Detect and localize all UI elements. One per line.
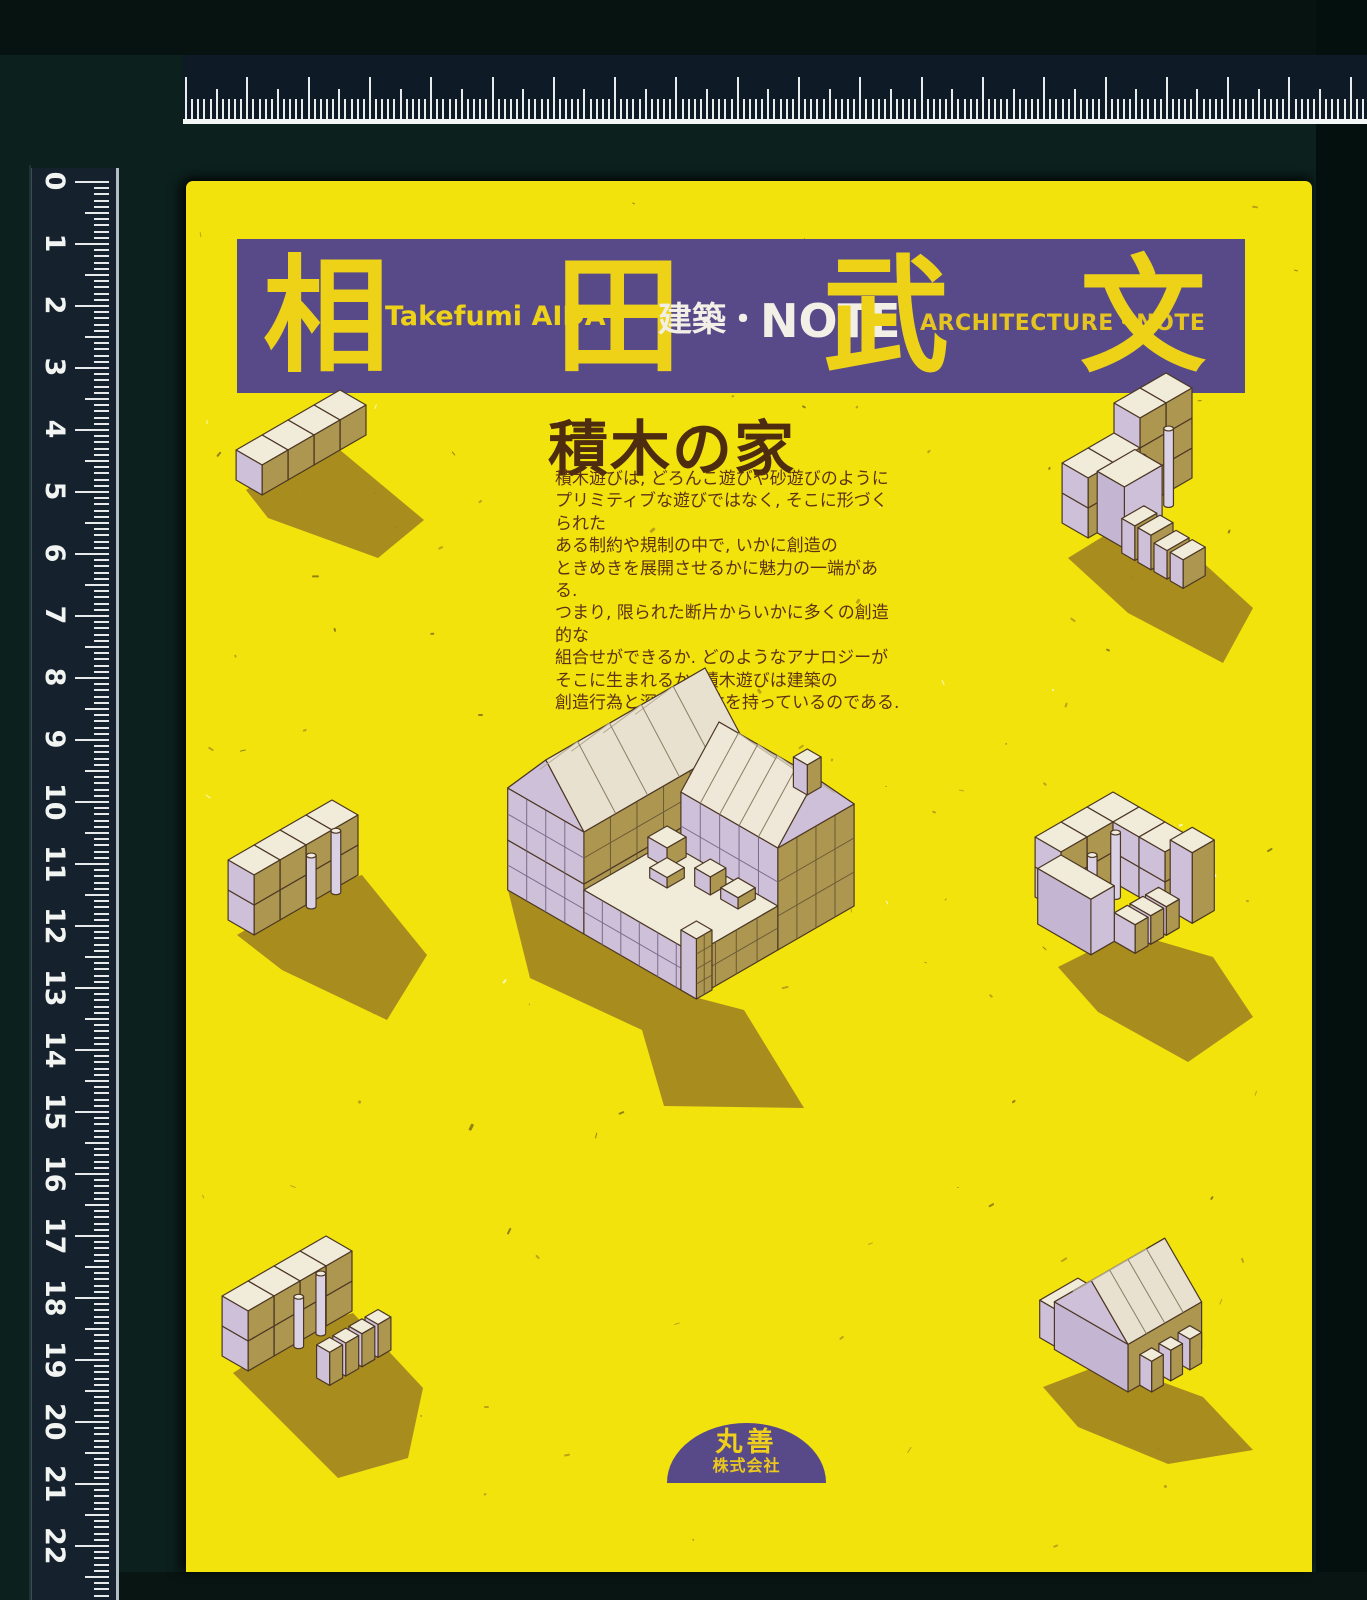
ruler-tick xyxy=(1227,77,1229,119)
ruler-tick xyxy=(240,99,242,119)
ruler-tick xyxy=(94,410,109,412)
ruler-tick xyxy=(94,1074,109,1076)
ruler-tick xyxy=(1245,99,1247,119)
ruler-tick xyxy=(94,1223,109,1225)
paper-fleck xyxy=(907,1447,912,1453)
ruler-tick xyxy=(1288,77,1290,119)
ruler-tick xyxy=(1013,89,1015,119)
ruler-tick xyxy=(620,99,622,119)
fig-center-house xyxy=(492,648,932,1118)
ruler-tick xyxy=(694,99,696,119)
ruler-tick xyxy=(878,99,880,119)
ruler-tick xyxy=(94,913,109,915)
ruler-tick xyxy=(1135,89,1137,119)
ruler-tick xyxy=(75,1235,109,1237)
ruler-tick xyxy=(1215,99,1217,119)
ruler-tick xyxy=(85,584,109,586)
ruler-tick xyxy=(94,702,109,704)
ruler-tick xyxy=(94,1161,109,1163)
ruler-tick xyxy=(957,99,959,119)
ruler-tick xyxy=(301,99,303,119)
top-ruler xyxy=(183,55,1367,124)
ruler-tick xyxy=(516,99,518,119)
ruler-tick xyxy=(988,99,990,119)
ruler-tick xyxy=(1203,99,1205,119)
paper-fleck xyxy=(205,795,211,800)
ruler-tick xyxy=(94,1371,109,1373)
paper-fleck xyxy=(438,546,443,550)
ruler-tick xyxy=(295,99,297,119)
ruler-tick xyxy=(85,1514,109,1516)
ruler-tick xyxy=(553,77,555,119)
ruler-tick xyxy=(191,99,193,119)
ruler-tick xyxy=(94,962,109,964)
left-ruler: 012345678910111213141516171819202122 xyxy=(31,168,119,1600)
ruler-tick xyxy=(700,99,702,119)
ruler-tick xyxy=(277,89,279,119)
series-jp-prefix: 建築・ xyxy=(658,300,760,340)
ruler-tick xyxy=(755,99,757,119)
ruler-tick xyxy=(94,293,109,295)
ruler-tick xyxy=(94,435,109,437)
ruler-tick xyxy=(94,634,109,636)
ruler-number: 17 xyxy=(39,1217,69,1253)
ruler-tick xyxy=(890,89,892,119)
ruler-tick xyxy=(94,466,109,468)
ruler-tick xyxy=(1301,99,1303,119)
publisher-type: 株式会社 xyxy=(667,1457,826,1475)
ruler-tick xyxy=(1080,99,1082,119)
ruler-tick xyxy=(94,727,109,729)
ruler-tick xyxy=(94,844,109,846)
ruler-tick xyxy=(865,99,867,119)
ruler-tick xyxy=(596,99,598,119)
ruler-tick xyxy=(75,1049,109,1051)
ruler-tick xyxy=(85,522,109,524)
ruler-tick xyxy=(94,882,109,884)
ruler-tick xyxy=(85,1080,109,1082)
ruler-tick xyxy=(94,1216,109,1218)
ruler-tick xyxy=(1031,99,1033,119)
ruler-tick xyxy=(1178,99,1180,119)
paper-fleck xyxy=(507,1227,512,1234)
ruler-tick xyxy=(737,77,739,119)
ruler-tick xyxy=(94,621,109,623)
ruler-tick xyxy=(651,99,653,119)
ruler-tick xyxy=(94,1477,109,1479)
ruler-tick xyxy=(85,1390,109,1392)
ruler-tick xyxy=(798,77,800,119)
paper-fleck xyxy=(1053,1544,1059,1548)
ruler-tick xyxy=(908,99,910,119)
ruler-tick xyxy=(94,361,109,363)
fig-top-left xyxy=(228,372,428,567)
ruler-tick xyxy=(375,99,377,119)
author-kanji-4: 文 xyxy=(1080,251,1206,381)
ruler-tick xyxy=(94,1154,109,1156)
ruler-tick xyxy=(1319,89,1321,119)
publisher-name: 丸善 xyxy=(667,1429,826,1457)
ruler-number: 22 xyxy=(39,1527,69,1563)
ruler-tick xyxy=(94,919,109,921)
ruler-tick xyxy=(75,1483,109,1485)
ruler-tick xyxy=(94,1309,109,1311)
ruler-number: 10 xyxy=(39,783,69,819)
ruler-tick xyxy=(94,745,109,747)
paper-fleck xyxy=(206,420,208,424)
paper-fleck xyxy=(564,1453,570,1456)
ruler-tick xyxy=(94,1526,109,1528)
ruler-tick xyxy=(1282,99,1284,119)
ruler-tick xyxy=(94,1278,109,1280)
paper-fleck xyxy=(429,633,433,635)
ruler-number: 14 xyxy=(39,1031,69,1067)
ruler-tick xyxy=(94,1427,109,1429)
ruler-tick xyxy=(804,99,806,119)
ruler-tick xyxy=(94,1055,109,1057)
ruler-tick xyxy=(1172,99,1174,119)
ruler-tick xyxy=(283,99,285,119)
ruler-tick xyxy=(94,1260,109,1262)
paper-fleck xyxy=(478,499,483,503)
ruler-tick xyxy=(94,454,109,456)
ruler-tick xyxy=(94,497,109,499)
ruler-tick xyxy=(185,77,187,119)
ruler-tick xyxy=(1295,99,1297,119)
ruler-tick xyxy=(94,1347,109,1349)
ruler-tick xyxy=(94,1464,109,1466)
ruler-tick xyxy=(94,392,109,394)
ruler-tick xyxy=(94,441,109,443)
ruler-tick xyxy=(75,1359,109,1361)
ruler-tick xyxy=(479,99,481,119)
ruler-tick xyxy=(94,268,109,270)
paper-fleck xyxy=(802,405,807,408)
ruler-tick xyxy=(743,99,745,119)
paper-fleck xyxy=(1005,743,1007,746)
ruler-tick xyxy=(970,99,972,119)
ruler-tick xyxy=(94,1595,109,1597)
ruler-tick xyxy=(85,1142,109,1144)
ruler-tick xyxy=(94,1557,109,1559)
ruler-tick xyxy=(94,187,109,189)
ruler-tick xyxy=(363,99,365,119)
ruler-tick xyxy=(94,665,109,667)
ruler-tick xyxy=(1325,99,1327,119)
ruler-tick xyxy=(85,832,109,834)
ruler-tick xyxy=(75,553,109,555)
ruler-tick xyxy=(731,99,733,119)
blurb-line: 積木遊びは, どろんこ遊びや砂遊びのように xyxy=(555,468,900,490)
ruler-tick xyxy=(94,206,109,208)
ruler-tick xyxy=(1006,99,1008,119)
ruler-tick xyxy=(246,77,248,119)
ruler-tick xyxy=(94,1192,109,1194)
ruler-tick xyxy=(94,200,109,202)
paper-fleck xyxy=(692,1539,695,1542)
book-cover: 相 Takefumi AIDA 田 建築・NOTE 武 ARCHITECTURE… xyxy=(186,181,1312,1572)
ruler-tick xyxy=(94,696,109,698)
ruler-tick xyxy=(94,807,109,809)
ruler-tick xyxy=(94,1247,109,1249)
ruler-tick xyxy=(94,1210,109,1212)
ruler-number: 4 xyxy=(39,411,69,447)
ruler-tick xyxy=(85,460,109,462)
ruler-tick xyxy=(1105,77,1107,119)
ruler-number: 3 xyxy=(39,349,69,385)
paper-fleck xyxy=(202,1194,205,1198)
ruler-tick xyxy=(94,1123,109,1125)
paper-fleck xyxy=(535,1255,540,1260)
ruler-tick xyxy=(853,99,855,119)
ruler-tick xyxy=(786,99,788,119)
ruler-tick xyxy=(994,99,996,119)
ruler-tick xyxy=(94,1533,109,1535)
ruler-tick xyxy=(85,274,109,276)
ruler-tick xyxy=(94,993,109,995)
ruler-tick xyxy=(75,429,109,431)
ruler-tick xyxy=(1062,99,1064,119)
ruler-tick xyxy=(94,559,109,561)
ruler-tick xyxy=(1025,99,1027,119)
ruler-tick xyxy=(823,99,825,119)
ruler-tick xyxy=(94,1254,109,1256)
ruler-tick xyxy=(308,77,310,119)
ruler-tick xyxy=(94,590,109,592)
ruler-tick xyxy=(94,751,109,753)
ruler-tick xyxy=(94,1024,109,1026)
ruler-tick xyxy=(94,1409,109,1411)
fig-bottom-left xyxy=(218,1228,428,1498)
ruler-tick xyxy=(94,671,109,673)
ruler-tick xyxy=(94,1012,109,1014)
fig-top-right xyxy=(1038,368,1278,678)
ruler-tick xyxy=(94,1489,109,1491)
ruler-tick xyxy=(688,99,690,119)
ruler-tick xyxy=(94,404,109,406)
ruler-tick xyxy=(94,386,109,388)
ruler-tick xyxy=(1307,99,1309,119)
ruler-tick xyxy=(504,99,506,119)
ruler-tick xyxy=(485,99,487,119)
ruler-tick xyxy=(1276,99,1278,119)
ruler-tick xyxy=(332,99,334,119)
ruler-tick xyxy=(94,820,109,822)
ruler-tick xyxy=(669,99,671,119)
ruler-number: 15 xyxy=(39,1093,69,1129)
blurb-line: つまり, 限られた断片からいかに多くの創造的な xyxy=(555,602,900,647)
ruler-tick xyxy=(75,677,109,679)
ruler-tick xyxy=(424,99,426,119)
ruler-number: 16 xyxy=(39,1155,69,1191)
ruler-tick xyxy=(1055,99,1057,119)
ruler-tick xyxy=(1074,89,1076,119)
ruler-tick xyxy=(761,99,763,119)
ruler-tick xyxy=(94,1402,109,1404)
ruler-tick xyxy=(289,99,291,119)
paper-fleck xyxy=(1294,270,1298,272)
ruler-tick xyxy=(94,1148,109,1150)
ruler-tick xyxy=(94,596,109,598)
ruler-tick xyxy=(94,999,109,1001)
ruler-tick xyxy=(792,99,794,119)
ruler-tick xyxy=(94,950,109,952)
background-top-band xyxy=(0,0,1367,55)
paper-fleck xyxy=(240,750,246,752)
ruler-tick xyxy=(682,99,684,119)
ruler-tick xyxy=(94,237,109,239)
ruler-tick xyxy=(94,1551,109,1553)
paper-fleck xyxy=(932,810,936,814)
ruler-tick xyxy=(1313,99,1315,119)
ruler-number: 21 xyxy=(39,1465,69,1501)
paper-fleck xyxy=(1011,1099,1015,1103)
ruler-tick xyxy=(1196,89,1198,119)
ruler-tick xyxy=(94,944,109,946)
ruler-tick xyxy=(94,1291,109,1293)
ruler-tick xyxy=(75,1173,109,1175)
ruler-tick xyxy=(94,1316,109,1318)
ruler-tick xyxy=(94,776,109,778)
paper-fleck xyxy=(478,714,483,716)
paper-fleck xyxy=(234,654,237,657)
ruler-tick xyxy=(94,931,109,933)
ruler-tick xyxy=(1344,99,1346,119)
ruler-tick xyxy=(933,99,935,119)
blurb-line: ある制約や規制の中で, いかに創造の xyxy=(555,535,900,557)
ruler-tick xyxy=(1141,99,1143,119)
ruler-tick xyxy=(1068,99,1070,119)
ruler-tick xyxy=(75,1111,109,1113)
ruler-tick xyxy=(265,99,267,119)
ruler-tick xyxy=(259,99,261,119)
blurb-line: ときめきを展開させるかに魅力の一端がある. xyxy=(555,558,900,603)
ruler-tick xyxy=(442,99,444,119)
paper-fleck xyxy=(208,746,214,751)
paper-fleck xyxy=(959,789,964,791)
ruler-tick xyxy=(94,1006,109,1008)
ruler-tick xyxy=(369,77,371,119)
ruler-tick xyxy=(75,1421,109,1423)
ruler-tick xyxy=(94,1353,109,1355)
ruler-tick xyxy=(85,1452,109,1454)
paper-fleck xyxy=(594,1132,597,1138)
ruler-tick xyxy=(94,1136,109,1138)
ruler-tick xyxy=(626,99,628,119)
background-right-band xyxy=(1316,0,1367,1600)
ruler-tick xyxy=(94,683,109,685)
ruler-tick xyxy=(921,77,923,119)
ruler-tick xyxy=(94,1433,109,1435)
ruler-tick xyxy=(94,733,109,735)
ruler-tick xyxy=(461,89,463,119)
ruler-tick xyxy=(902,99,904,119)
ruler-tick xyxy=(675,77,677,119)
ruler-tick xyxy=(94,851,109,853)
ruler-tick xyxy=(338,89,340,119)
paper-fleck xyxy=(941,680,945,686)
ruler-tick xyxy=(94,1303,109,1305)
ruler-tick xyxy=(94,1037,109,1039)
ruler-tick xyxy=(94,193,109,195)
ruler-tick xyxy=(773,99,775,119)
ruler-tick xyxy=(94,689,109,691)
ruler-tick xyxy=(351,99,353,119)
ruler-tick xyxy=(94,981,109,983)
ruler-tick xyxy=(94,342,109,344)
ruler-tick xyxy=(252,99,254,119)
ruler-tick xyxy=(94,578,109,580)
paper-fleck xyxy=(839,1336,844,1341)
ruler-tick xyxy=(1258,89,1260,119)
ruler-tick xyxy=(94,1179,109,1181)
ruler-tick xyxy=(75,801,109,803)
paper-fleck xyxy=(1255,1091,1258,1096)
ruler-tick xyxy=(94,355,109,357)
ruler-tick xyxy=(94,311,109,313)
ruler-tick xyxy=(85,212,109,214)
paper-fleck xyxy=(334,628,337,632)
ruler-tick xyxy=(94,869,109,871)
ruler-tick xyxy=(896,99,898,119)
ruler-tick xyxy=(94,1241,109,1243)
ruler-tick xyxy=(473,99,475,119)
ruler-tick xyxy=(94,348,109,350)
ruler-tick xyxy=(455,99,457,119)
ruler-number: 9 xyxy=(39,721,69,757)
ruler-tick xyxy=(94,528,109,530)
ruler-tick xyxy=(85,956,109,958)
ruler-tick xyxy=(94,1086,109,1088)
ruler-tick xyxy=(1019,99,1021,119)
ruler-tick xyxy=(94,888,109,890)
blurb-line: プリミティブな遊びではなく, そこに形づくられた xyxy=(555,490,900,535)
ruler-tick xyxy=(94,720,109,722)
ruler-number: 6 xyxy=(39,535,69,571)
ruler-number: 11 xyxy=(39,845,69,881)
ruler-tick xyxy=(547,99,549,119)
ruler-tick xyxy=(94,503,109,505)
ruler-tick xyxy=(1000,99,1002,119)
ruler-tick xyxy=(1270,99,1272,119)
ruler-tick xyxy=(85,894,109,896)
ruler-number: 20 xyxy=(39,1403,69,1439)
ruler-tick xyxy=(94,652,109,654)
ruler-tick xyxy=(234,99,236,119)
ruler-tick xyxy=(841,99,843,119)
ruler-tick xyxy=(430,77,432,119)
ruler-tick xyxy=(1252,99,1254,119)
ruler-tick xyxy=(1209,99,1211,119)
ruler-tick xyxy=(406,99,408,119)
ruler-tick xyxy=(94,534,109,536)
ruler-tick xyxy=(94,813,109,815)
ruler-tick xyxy=(94,286,109,288)
ruler-tick xyxy=(94,1185,109,1187)
ruler-tick xyxy=(565,99,567,119)
ruler-tick xyxy=(1086,99,1088,119)
ruler-tick xyxy=(271,99,273,119)
ruler-tick xyxy=(94,255,109,257)
fig-mid-left xyxy=(222,785,432,1035)
ruler-tick xyxy=(767,89,769,119)
ruler-tick xyxy=(228,99,230,119)
ruler-tick xyxy=(559,99,561,119)
ruler-tick xyxy=(1098,99,1100,119)
paper-fleck xyxy=(358,1100,362,1104)
ruler-tick xyxy=(412,99,414,119)
ruler-tick xyxy=(1233,99,1235,119)
